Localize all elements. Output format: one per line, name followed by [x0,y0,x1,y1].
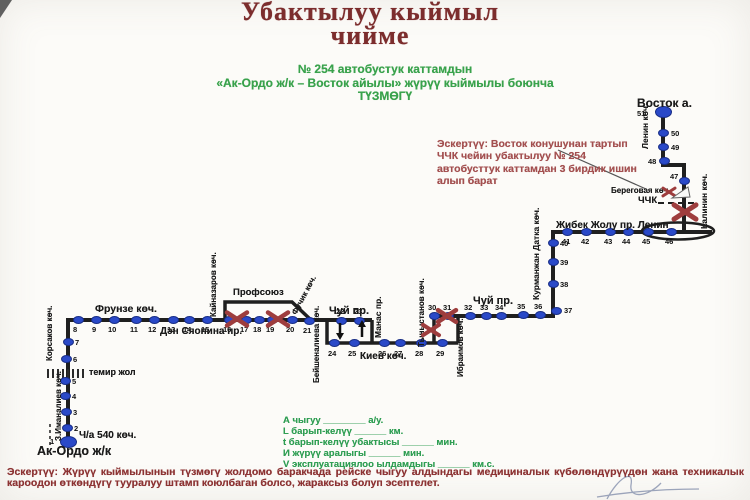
legend-line-distance: L барып-келүү ______ км. [283,426,495,437]
bus-stop-number-12: 12 [148,325,156,334]
bus-stop-25 [349,339,360,347]
bus-stop-24 [329,339,340,347]
street-label: Профсоюз [233,287,284,298]
bus-stop-50 [658,129,669,137]
bus-stop-26 [379,339,390,347]
bus-stop-15 [202,316,213,324]
street-label: Ч/а 540 көч. [79,430,136,441]
closure-x-mark [674,205,696,219]
street-label: З.Иманалиев көч. [54,371,63,441]
bus-stop-number-10: 10 [108,325,116,334]
street-label: Чуй пр. [473,295,513,307]
bus-stop-11 [131,316,142,324]
street-label: Дэн Сяопина пр. [160,326,242,337]
bus-stop-number-5: 5 [72,377,76,386]
street-label: темир жол [89,367,136,377]
bus-stop-number-25: 25 [348,349,356,358]
bus-stop-number-11: 11 [130,325,138,334]
chchk-arrow-icon [672,187,690,198]
bus-stop-7 [63,338,74,346]
bus-stop-number-4: 4 [72,392,76,401]
page-title-line2: чийме [331,21,410,50]
bus-stop-number-6: 6 [73,355,77,364]
bus-stop-31 [443,312,454,320]
street-label: Киев көч. [360,351,406,362]
bus-stop-number-47: 47 [670,172,678,181]
note-temporary-service: Эскертүү: Восток конушунан тартып ЧЧК че… [437,138,645,187]
route-subtitle: № 254 автобустук каттамдын «Ак-Ордо ж/к … [140,63,630,104]
bus-stop-number-2: 2 [74,424,78,433]
note-validity-text: Жүрүү кыймылынын түзмөгү жолдомо баракча… [7,466,744,489]
bus-stop-number-41: 41 [562,237,570,246]
page-title: Убактылуу кыймылчийме [120,0,620,48]
subtitle-line3: ТҮЗМӨГҮ [140,90,630,104]
bus-stop-number-3: 3 [73,408,77,417]
street-label: Жибек Жолу пр. Ленин [556,220,669,231]
bus-stop-38 [548,280,559,288]
bus-stop-27 [395,339,406,347]
street-label: ЧЧК [638,195,657,206]
bus-stop-number-37: 37 [564,306,572,315]
bus-stop-number-43: 43 [604,237,612,246]
bus-stop-32 [465,312,476,320]
bus-stop-36 [535,311,546,319]
note-validity: Эскертүү: Жүрүү кыймылынын түзмөгү жолдо… [7,467,744,489]
bus-stop-29 [437,339,448,347]
bus-stop-19 [267,316,278,324]
street-label: Калинин көч. [699,174,709,229]
bus-stop-number-32: 32 [464,303,472,312]
bus-stop-number-20: 20 [286,325,294,334]
bus-stop-10 [109,316,120,324]
legend-line-departure: А чыгуу ________ а/у. [283,415,495,426]
bus-stop-47 [679,177,690,185]
bus-stop-number-44: 44 [622,237,630,246]
bus-stop-16 [224,316,235,324]
bus-stop-number-28: 28 [415,349,423,358]
street-label: Береговая көч. [611,186,671,195]
bus-stop-number-18: 18 [253,325,261,334]
bus-stop-34 [496,312,507,320]
bus-stop-35 [518,311,529,319]
bus-stop-37 [551,307,562,315]
legend-line-interval: И жүрүү аралыгы ______ мин. [283,448,495,459]
bus-stop-number-45: 45 [642,237,650,246]
bus-stop-number-49: 49 [671,143,679,152]
bus-stop-number-48: 48 [648,157,656,166]
scanned-route-document: 1234567891011121314151617181920212223242… [0,0,750,500]
bus-stop-number-31: 31 [443,303,451,312]
bus-stop-number-42: 42 [581,237,589,246]
legend-line-roundtrip-time: t барып-келүү убактысы ______ мин. [283,437,495,448]
street-label: Курманжан Датка көч. [531,208,541,300]
bus-stop-number-50: 50 [671,129,679,138]
street-label: Фрунзе көч. [95,303,157,315]
route-line-kalinin-lenin [663,107,684,232]
bus-stop-14 [184,316,195,324]
bus-stop-20 [287,316,298,324]
bus-stop-number-8: 8 [73,325,77,334]
bus-stop-23 [354,317,365,325]
bus-stop-6 [61,355,72,363]
bus-stop-40 [548,239,559,247]
scan-corner-artifact [0,0,12,18]
bus-stop-22 [336,317,347,325]
bus-stop-17 [241,316,252,324]
bus-stop-number-35: 35 [517,302,525,311]
bus-stop-39 [548,258,559,266]
bus-stop-number-9: 9 [92,325,96,334]
street-label: Тыныстанов көч. [417,278,426,347]
bus-stop-number-7: 7 [75,338,79,347]
bus-stop-12 [149,316,160,324]
street-label: Манас пр. [373,296,383,338]
bus-stop-number-24: 24 [328,349,336,358]
street-label: Ак-Ордо ж/к [37,444,111,458]
bus-stop-48 [659,157,670,165]
closure-x-mark [674,205,696,219]
bus-stop-9 [91,316,102,324]
bus-stop-2 [62,424,73,432]
bus-stop-8 [73,316,84,324]
subtitle-line1: № 254 автобустук каттамдын [140,63,630,77]
street-label: Корсаков көч. [45,306,54,361]
bus-stop-number-30: 30 [428,303,436,312]
bus-stop-number-29: 29 [436,349,444,358]
bus-stop-number-19: 19 [266,325,274,334]
street-label: Ибраимов көч. [456,318,465,377]
bus-stop-49 [658,143,669,151]
subtitle-line2: «Ак-Ордо ж/к – Восток айылы» жүрүү кыймы… [140,77,630,91]
bus-stop-number-21: 21 [303,326,311,335]
bus-stop-33 [481,312,492,320]
legend-metrics: А чыгуу ________ а/у. L барып-келүү ____… [283,415,495,470]
bus-stop-number-36: 36 [534,302,542,311]
street-label: Бейшеналиева көч. [312,306,321,383]
bus-stop-number-38: 38 [560,280,568,289]
bus-stop-number-46: 46 [665,237,673,246]
bus-stop-18 [254,316,265,324]
bus-stop-13 [168,316,179,324]
street-label: Чуй пр. [329,305,369,317]
bus-stop-number-39: 39 [560,258,568,267]
street-label: Кайназаров көч. [209,252,218,317]
bus-stop-30 [429,312,440,320]
